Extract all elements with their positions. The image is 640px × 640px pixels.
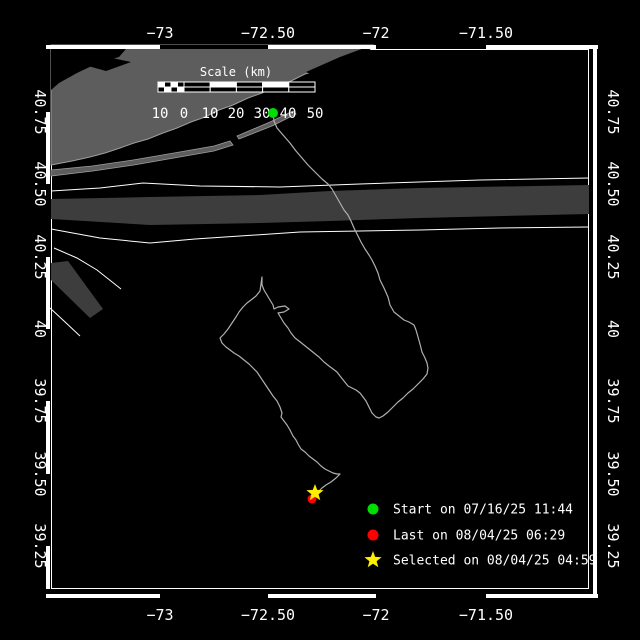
border-bottom-segment bbox=[51, 594, 160, 598]
scalebar-tick-label: 50 bbox=[307, 106, 324, 122]
scalebar-fine-cell bbox=[165, 82, 172, 87]
drifter-track-map: −73−73−72.50−72.50−72−72−71.50−71.5040.7… bbox=[0, 0, 640, 640]
border-bottom-segment bbox=[160, 594, 268, 598]
lat-label-right: 39.75 bbox=[604, 378, 622, 423]
border-top-segment bbox=[268, 45, 376, 49]
scalebar-tick-label: 10 bbox=[202, 106, 219, 122]
legend: Start on 07/16/25 11:44Last on 08/04/25 … bbox=[364, 503, 596, 569]
scalebar-fine-cell bbox=[171, 87, 178, 92]
lon-label-bottom: −73 bbox=[146, 606, 173, 624]
lat-label-right: 39.50 bbox=[604, 451, 622, 496]
start-position-dot bbox=[268, 108, 278, 118]
border-right-band bbox=[593, 45, 597, 598]
legend-label: Selected on 08/04/25 04:59 bbox=[393, 554, 597, 569]
lat-label-right: 40.75 bbox=[604, 89, 622, 134]
legend-label: Start on 07/16/25 11:44 bbox=[393, 503, 573, 518]
scalebar-main-cell bbox=[289, 82, 315, 87]
scalebar-main-cell bbox=[236, 82, 262, 87]
scalebar-tick-label: 0 bbox=[180, 106, 188, 122]
lat-label-right: 40 bbox=[604, 320, 622, 338]
scalebar-tick-label: 20 bbox=[228, 106, 245, 122]
scalebar-fine-cell bbox=[158, 82, 165, 87]
border-bottom-segment bbox=[376, 594, 486, 598]
scalebar-main-cell bbox=[210, 87, 236, 92]
lon-label-top: −73 bbox=[146, 24, 173, 42]
scalebar-fine-cell bbox=[178, 87, 185, 92]
lat-label-left: 39.25 bbox=[31, 523, 49, 568]
scalebar-main-cell bbox=[263, 87, 289, 92]
lon-label-top: −71.50 bbox=[459, 24, 513, 42]
lat-label-right: 40.50 bbox=[604, 161, 622, 206]
border-top-segment bbox=[376, 45, 486, 49]
scalebar-main-cell bbox=[184, 87, 210, 92]
lat-label-left: 39.50 bbox=[31, 451, 49, 496]
lat-label-left: 40.75 bbox=[31, 89, 49, 134]
lon-label-bottom: −71.50 bbox=[459, 606, 513, 624]
lon-label-bottom: −72 bbox=[362, 606, 389, 624]
lat-label-left: 39.75 bbox=[31, 378, 49, 423]
scalebar-title: Scale (km) bbox=[200, 65, 272, 79]
border-top-stub-left bbox=[46, 45, 51, 49]
lat-label-right: 40.25 bbox=[604, 234, 622, 279]
lon-label-bottom: −72.50 bbox=[241, 606, 295, 624]
border-bottom-segment bbox=[268, 594, 376, 598]
scalebar-main-cell bbox=[236, 87, 262, 92]
scalebar-fine-cell bbox=[158, 87, 165, 92]
scalebar-main-cell bbox=[289, 87, 315, 92]
legend-label: Last on 08/04/25 06:29 bbox=[393, 529, 565, 544]
lat-label-left: 40.25 bbox=[31, 234, 49, 279]
scalebar-main-cell bbox=[263, 82, 289, 87]
lat-label-right: 39.25 bbox=[604, 523, 622, 568]
scalebar-main-cell bbox=[210, 82, 236, 87]
scalebar-main-cell bbox=[184, 82, 210, 87]
lon-label-top: −72 bbox=[362, 24, 389, 42]
border-top-stub-right bbox=[589, 45, 598, 49]
scalebar-fine-cell bbox=[171, 82, 178, 87]
border-top-segment bbox=[160, 45, 268, 49]
border-top-segment bbox=[51, 45, 160, 49]
scalebar-fine-cell bbox=[178, 82, 185, 87]
last-marker-icon bbox=[368, 530, 379, 541]
map-canvas: −73−73−72.50−72.50−72−72−71.50−71.5040.7… bbox=[0, 0, 640, 640]
border-bottom-stub-right bbox=[589, 594, 598, 598]
lon-label-top: −72.50 bbox=[241, 24, 295, 42]
scalebar-tick-label: 30 bbox=[254, 106, 271, 122]
start-marker-icon bbox=[368, 504, 379, 515]
lat-label-left: 40.50 bbox=[31, 161, 49, 206]
border-top-segment bbox=[486, 45, 589, 49]
scalebar-fine-cell bbox=[165, 87, 172, 92]
border-bottom-stub-left bbox=[46, 594, 51, 598]
border-bottom-segment bbox=[486, 594, 589, 598]
scalebar-tick-label: 40 bbox=[280, 106, 297, 122]
scalebar-tick-label: 10 bbox=[152, 106, 169, 122]
lat-label-left: 40 bbox=[31, 320, 49, 338]
